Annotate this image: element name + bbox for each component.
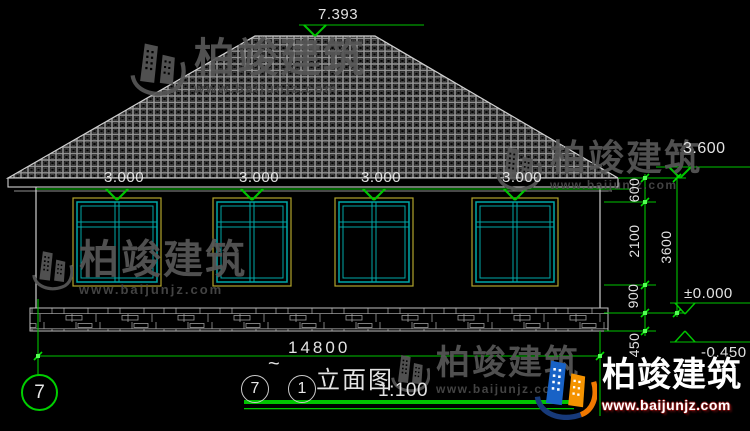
level-eave-4: 3.000 [502,170,542,185]
level-zero: ±0.000 [684,286,733,301]
watermark-brand: 柏竣建筑 [550,140,702,176]
brand-logo-icon [126,36,188,96]
dim-3600: 3600 [659,230,673,263]
brand-name: 柏竣建筑 [602,358,742,392]
level-eave-2: 3.000 [239,170,279,185]
plinth-stone-band [30,308,608,331]
cad-elevation-drawing: 柏竣建筑 www.baijunjz.com 柏竣建筑 www.baijunjz.… [0,0,750,431]
brand-logo: 柏竣建筑 www.baijunjz.com [533,350,742,420]
dim-600: 600 [627,178,641,203]
watermark-brand: 柏竣建筑 [194,38,366,79]
window-4 [472,198,558,286]
title-axis-from-bubble: 7 [241,375,269,403]
watermark-top-left: 柏竣建筑 www.baijunjz.com [126,36,366,96]
level-eave-3: 3.000 [361,170,401,185]
level-ridge: 7.393 [318,7,358,22]
dim-900: 900 [626,284,640,309]
brand-logo-icon [31,243,73,293]
brand-logo-icon [533,350,597,420]
title-axis-to-bubble: 1 [288,375,316,403]
watermark-url: www.baijunjz.com [194,82,366,95]
dim-2100: 2100 [627,224,641,257]
title-underline [244,400,574,409]
dim-total-width: 14800 [288,339,350,356]
window-3 [335,198,413,286]
watermark-left: 柏竣建筑 www.baijunjz.com [31,240,247,296]
watermark-brand: 柏竣建筑 [79,240,247,280]
title-tilde: ~ [268,354,280,374]
level-right-eave: 3.600 [683,141,726,157]
axis-bubble-7: 7 [21,374,58,411]
drawing-scale: 1:100 [378,381,428,400]
watermark-url: www.baijunjz.com [79,283,247,296]
level-eave-1: 3.000 [104,170,144,185]
brand-url: www.baijunjz.com [602,398,742,412]
